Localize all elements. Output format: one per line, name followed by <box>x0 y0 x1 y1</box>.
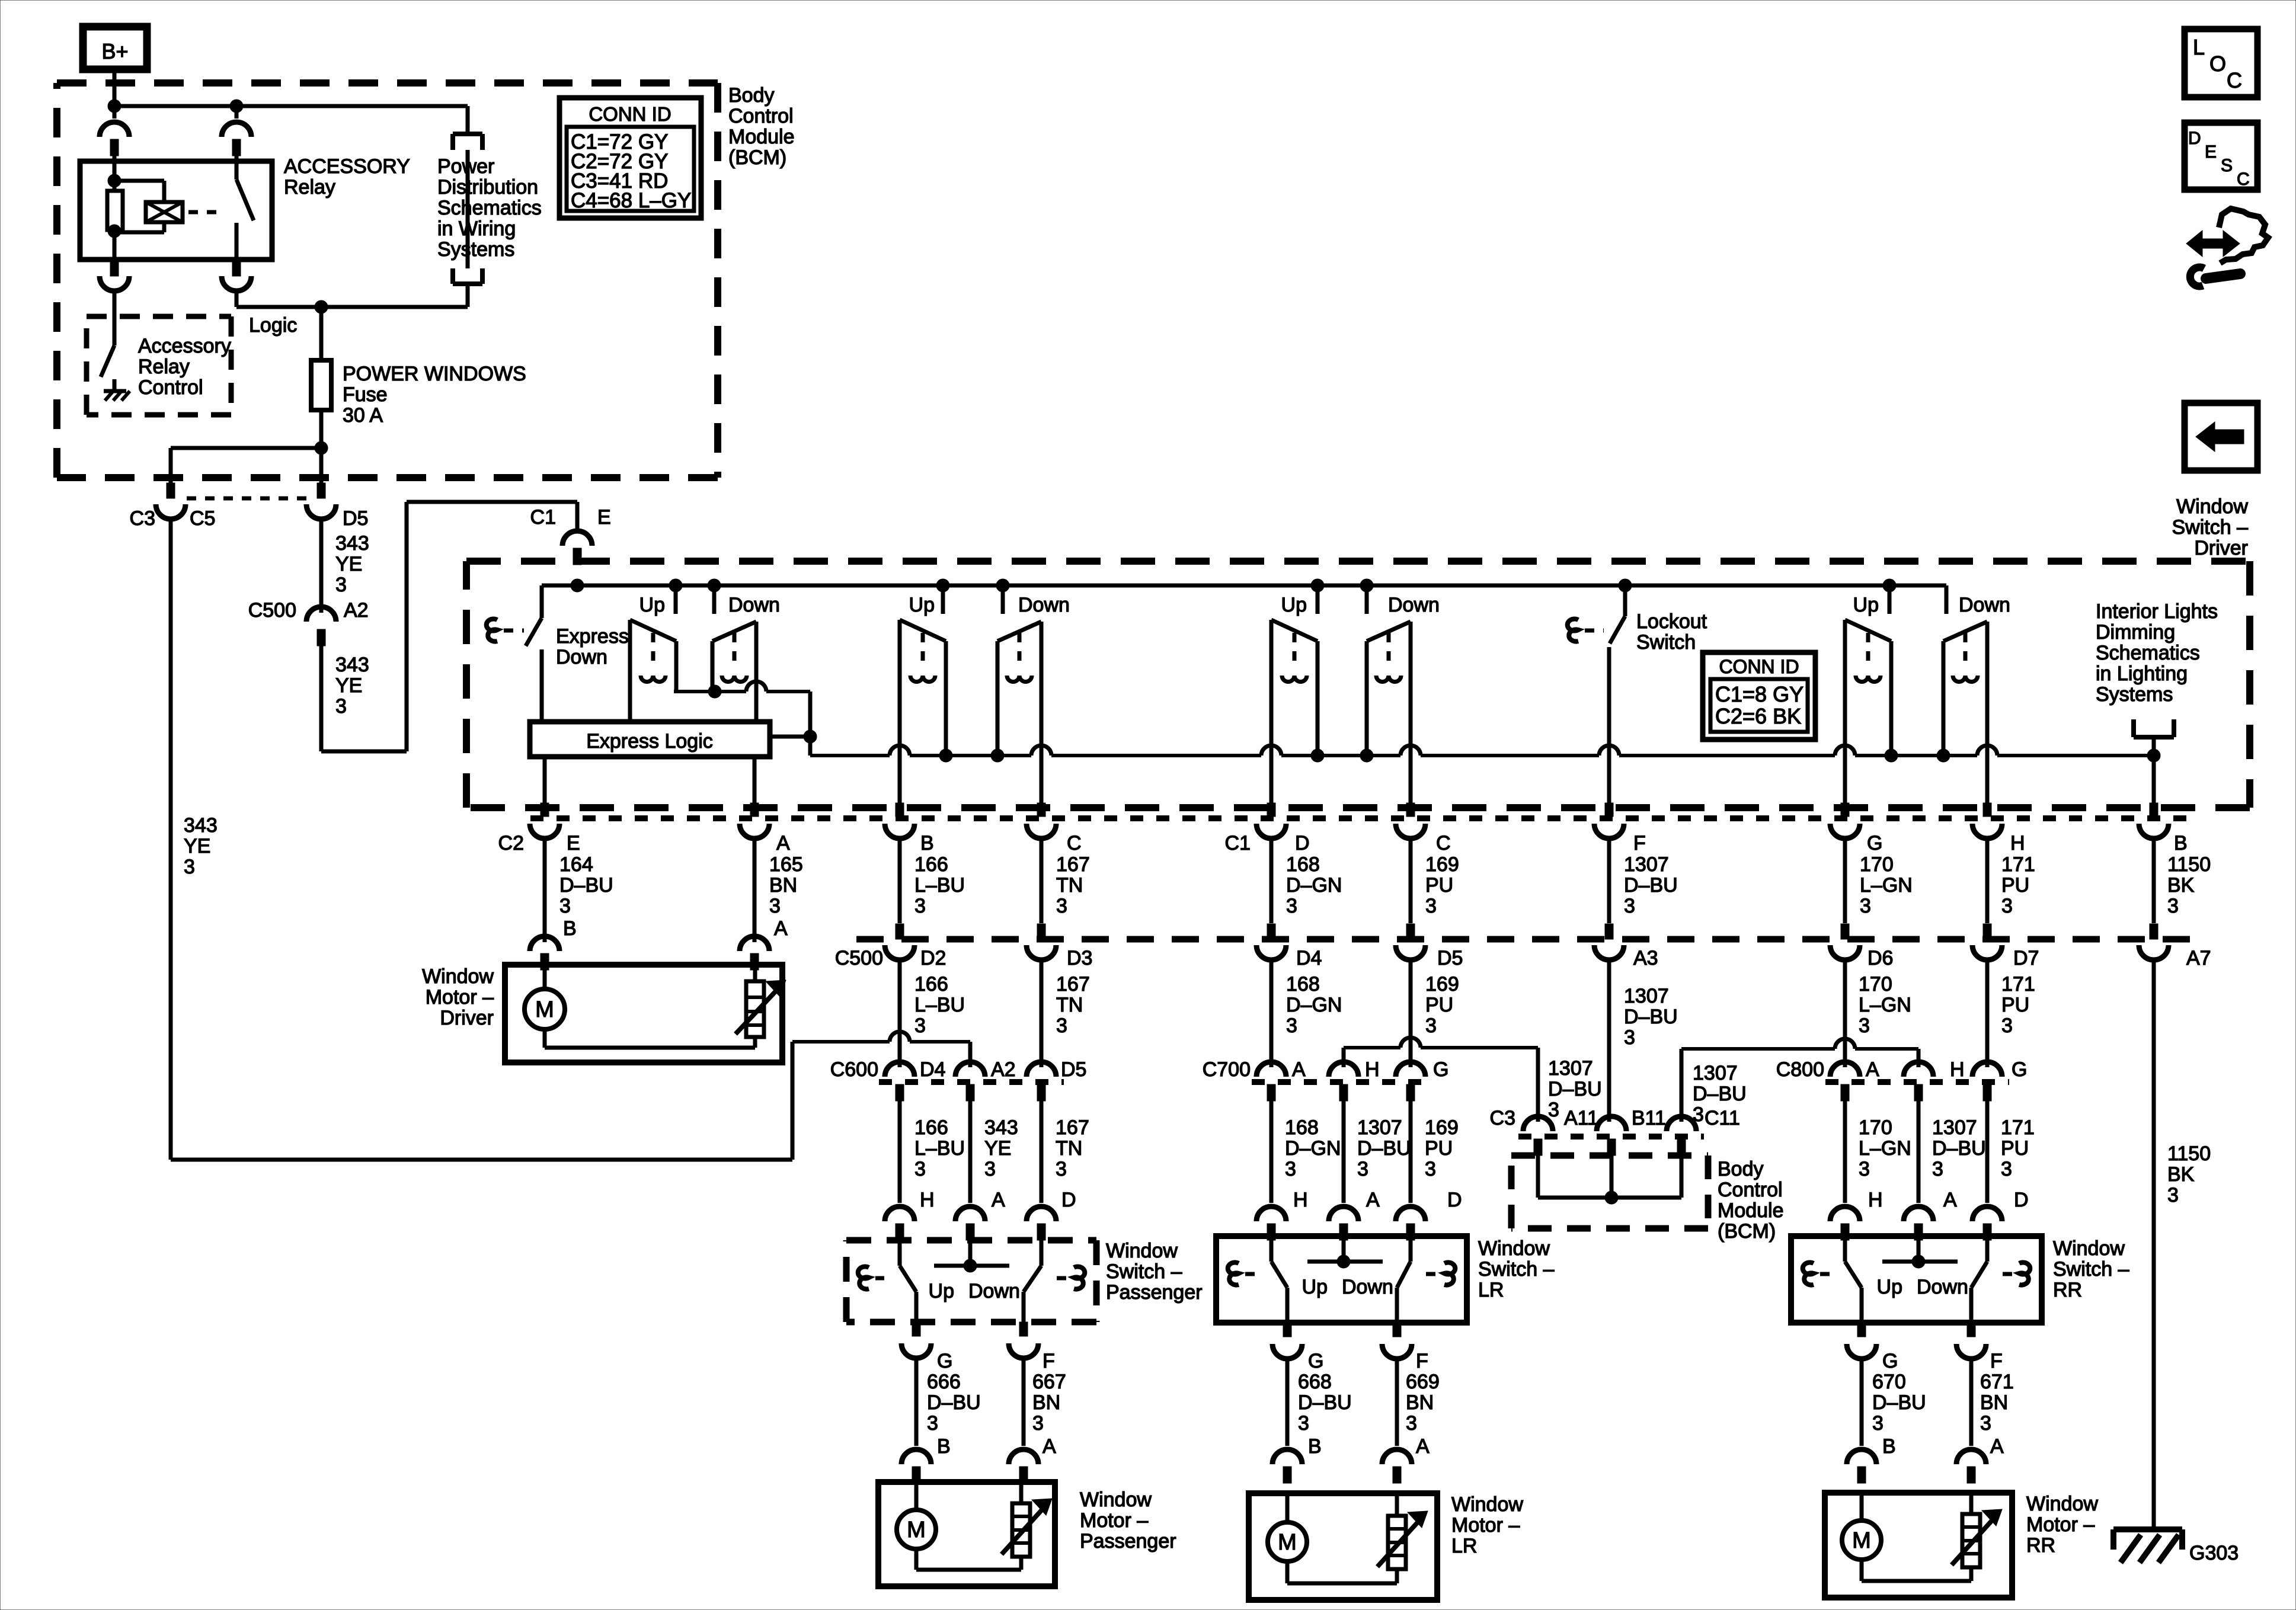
svg-text:(BCM): (BCM) <box>1718 1220 1776 1243</box>
svg-text:RR: RR <box>2053 1279 2082 1301</box>
svg-text:BN: BN <box>1406 1391 1434 1414</box>
svg-text:D–BU: D–BU <box>1357 1137 1411 1160</box>
svg-text:B: B <box>2174 832 2188 854</box>
svg-text:C: C <box>2237 169 2250 189</box>
svg-text:D3: D3 <box>1067 947 1092 969</box>
svg-text:LR: LR <box>1451 1535 1477 1557</box>
svg-text:L–GN: L–GN <box>1859 1137 1911 1160</box>
svg-text:3: 3 <box>914 895 926 917</box>
svg-text:PU: PU <box>2001 1137 2029 1160</box>
svg-text:666: 666 <box>927 1371 961 1393</box>
svg-text:3: 3 <box>1056 895 1067 917</box>
svg-text:B+: B+ <box>101 39 128 63</box>
svg-text:3: 3 <box>2001 1158 2012 1180</box>
svg-text:CONN ID: CONN ID <box>1719 656 1799 677</box>
svg-text:D–GN: D–GN <box>1285 1137 1341 1160</box>
svg-text:171: 171 <box>2001 853 2035 876</box>
svg-text:3: 3 <box>2167 1184 2179 1206</box>
svg-text:C1=8 GY: C1=8 GY <box>1715 682 1803 706</box>
svg-text:3: 3 <box>335 574 347 596</box>
svg-text:YE: YE <box>335 553 362 575</box>
svg-text:E: E <box>2205 142 2217 162</box>
svg-text:D4: D4 <box>920 1058 945 1081</box>
svg-text:L–BU: L–BU <box>914 994 965 1016</box>
svg-text:Systems: Systems <box>2096 683 2173 706</box>
svg-text:170: 170 <box>1859 973 1892 996</box>
svg-text:G: G <box>1882 1350 1898 1372</box>
svg-text:D–GN: D–GN <box>1286 874 1342 897</box>
svg-text:PU: PU <box>1425 1137 1453 1160</box>
svg-text:D: D <box>2014 1189 2029 1211</box>
svg-text:343: 343 <box>184 814 218 837</box>
svg-text:3: 3 <box>1286 895 1297 917</box>
svg-text:167: 167 <box>1056 853 1090 876</box>
svg-text:A: A <box>1866 1058 1879 1081</box>
svg-text:C500: C500 <box>835 947 883 969</box>
svg-text:Relay: Relay <box>138 356 190 378</box>
svg-text:30 A: 30 A <box>343 404 383 427</box>
svg-text:A2: A2 <box>991 1058 1016 1081</box>
svg-text:3: 3 <box>1860 895 1871 917</box>
svg-text:C: C <box>1067 832 1082 854</box>
svg-text:POWER WINDOWS: POWER WINDOWS <box>343 363 526 385</box>
svg-text:YE: YE <box>984 1137 1011 1160</box>
svg-text:168: 168 <box>1286 973 1320 996</box>
svg-text:Body: Body <box>1718 1158 1764 1180</box>
svg-text:L–BU: L–BU <box>914 874 965 897</box>
svg-text:B: B <box>563 917 577 940</box>
svg-text:S: S <box>2221 156 2233 175</box>
svg-text:Driver: Driver <box>440 1007 494 1029</box>
svg-text:1307: 1307 <box>1693 1062 1738 1084</box>
svg-text:Fuse: Fuse <box>343 383 388 406</box>
svg-text:BN: BN <box>1980 1391 2008 1414</box>
svg-text:3: 3 <box>1859 1014 1870 1037</box>
svg-text:Down: Down <box>1959 594 2010 616</box>
svg-text:O: O <box>2209 52 2226 76</box>
svg-text:CONN ID: CONN ID <box>589 103 671 125</box>
svg-text:D: D <box>1295 832 1310 854</box>
svg-text:H: H <box>920 1189 935 1211</box>
svg-text:171: 171 <box>2001 1116 2035 1139</box>
svg-text:3: 3 <box>1056 1158 1067 1180</box>
svg-text:E: E <box>567 832 580 854</box>
svg-text:Motor –: Motor – <box>426 986 494 1009</box>
svg-text:G303: G303 <box>2189 1542 2239 1564</box>
svg-text:Window: Window <box>422 965 494 988</box>
svg-text:PU: PU <box>1425 874 1453 897</box>
svg-text:E: E <box>597 506 611 529</box>
svg-text:Window: Window <box>1080 1489 1152 1511</box>
svg-text:D6: D6 <box>1868 947 1893 969</box>
svg-text:Express Logic: Express Logic <box>586 730 713 753</box>
svg-text:A: A <box>1416 1435 1430 1458</box>
svg-text:A2: A2 <box>344 599 369 622</box>
svg-text:1307: 1307 <box>1357 1116 1402 1139</box>
svg-text:Down: Down <box>556 646 607 668</box>
svg-text:Passenger: Passenger <box>1080 1530 1176 1553</box>
svg-text:168: 168 <box>1285 1116 1319 1139</box>
svg-text:3: 3 <box>1548 1099 1559 1121</box>
svg-text:ACCESSORY: ACCESSORY <box>284 155 410 178</box>
svg-text:C11: C11 <box>1705 1107 1740 1129</box>
svg-text:A: A <box>1292 1058 1306 1081</box>
svg-text:G: G <box>1308 1350 1323 1372</box>
svg-text:169: 169 <box>1425 1116 1459 1139</box>
svg-text:3: 3 <box>1056 1014 1067 1037</box>
svg-text:TN: TN <box>1056 874 1083 897</box>
svg-text:3: 3 <box>914 1158 926 1180</box>
svg-text:C800: C800 <box>1776 1058 1824 1081</box>
svg-text:171: 171 <box>2001 973 2035 996</box>
svg-text:Switch –: Switch – <box>2053 1258 2129 1281</box>
svg-text:3: 3 <box>1980 1412 1991 1435</box>
svg-text:Interior Lights: Interior Lights <box>2096 600 2218 623</box>
svg-text:Down: Down <box>1917 1276 1968 1298</box>
svg-text:Switch –: Switch – <box>2172 516 2249 539</box>
svg-text:Control: Control <box>1718 1179 1783 1201</box>
svg-text:165: 165 <box>769 853 803 876</box>
svg-text:B: B <box>920 832 934 854</box>
svg-text:3: 3 <box>1286 1014 1297 1037</box>
svg-text:C4=68 L–GY: C4=68 L–GY <box>571 189 691 212</box>
svg-text:L–BU: L–BU <box>914 1137 965 1160</box>
svg-text:C3: C3 <box>1490 1107 1515 1129</box>
svg-text:F: F <box>1633 832 1646 854</box>
svg-text:A: A <box>1366 1189 1380 1211</box>
svg-text:Up: Up <box>1877 1276 1902 1298</box>
svg-text:343: 343 <box>335 654 369 676</box>
svg-text:3: 3 <box>914 1014 926 1037</box>
svg-text:670: 670 <box>1872 1371 1906 1393</box>
svg-text:667: 667 <box>1032 1371 1066 1393</box>
svg-text:B: B <box>1308 1435 1322 1458</box>
svg-text:Accessory: Accessory <box>138 335 231 357</box>
svg-text:166: 166 <box>914 853 948 876</box>
svg-text:671: 671 <box>1980 1371 2014 1393</box>
svg-text:C2: C2 <box>498 832 524 854</box>
svg-text:A7: A7 <box>2186 947 2211 969</box>
svg-text:Logic: Logic <box>249 314 297 337</box>
svg-text:3: 3 <box>1932 1158 1943 1180</box>
svg-text:D: D <box>2188 129 2201 148</box>
svg-text:D–BU: D–BU <box>1548 1078 1602 1100</box>
svg-text:M: M <box>535 997 554 1022</box>
svg-text:TN: TN <box>1056 1137 1082 1160</box>
svg-text:166: 166 <box>914 1116 948 1139</box>
svg-text:Motor –: Motor – <box>1451 1514 1520 1537</box>
svg-text:C3: C3 <box>130 507 155 530</box>
svg-text:Window: Window <box>2176 495 2248 518</box>
svg-text:D5: D5 <box>1061 1058 1086 1081</box>
svg-text:L–GN: L–GN <box>1860 874 1913 897</box>
svg-text:Up: Up <box>909 594 935 616</box>
svg-text:A: A <box>1990 1435 2004 1458</box>
svg-text:3: 3 <box>1298 1412 1309 1435</box>
svg-text:C600: C600 <box>830 1058 878 1081</box>
svg-text:Control: Control <box>728 105 794 127</box>
svg-text:3: 3 <box>1872 1412 1884 1435</box>
svg-text:PU: PU <box>1425 994 1453 1016</box>
svg-text:3: 3 <box>1285 1158 1296 1180</box>
svg-text:G: G <box>2012 1058 2027 1081</box>
svg-text:668: 668 <box>1298 1371 1332 1393</box>
svg-text:3: 3 <box>335 695 347 718</box>
svg-text:3: 3 <box>2001 895 2013 917</box>
svg-text:F: F <box>1416 1350 1428 1372</box>
svg-text:D2: D2 <box>920 947 946 969</box>
svg-text:Express: Express <box>556 625 629 648</box>
svg-text:169: 169 <box>1425 973 1459 996</box>
svg-text:YE: YE <box>335 674 362 697</box>
svg-text:B: B <box>937 1435 951 1458</box>
svg-text:3: 3 <box>1425 895 1437 917</box>
svg-text:D–BU: D–BU <box>927 1391 981 1414</box>
svg-text:Up: Up <box>1281 594 1307 616</box>
svg-text:A11: A11 <box>1564 1107 1598 1129</box>
svg-text:343: 343 <box>335 532 369 555</box>
svg-text:3: 3 <box>184 856 195 878</box>
svg-text:Up: Up <box>1853 594 1879 616</box>
svg-text:Window: Window <box>1106 1240 1178 1262</box>
svg-text:Power: Power <box>437 155 494 178</box>
svg-text:YE: YE <box>184 835 210 857</box>
svg-text:Module: Module <box>1718 1199 1784 1222</box>
svg-text:Driver: Driver <box>2194 537 2248 559</box>
svg-text:3: 3 <box>769 895 781 917</box>
svg-text:TN: TN <box>1056 994 1083 1016</box>
svg-text:1150: 1150 <box>2167 1142 2211 1165</box>
svg-text:1307: 1307 <box>1624 853 1669 876</box>
svg-text:BN: BN <box>1032 1391 1060 1414</box>
svg-text:3: 3 <box>2001 1014 2013 1037</box>
svg-text:D–BU: D–BU <box>559 874 613 897</box>
svg-text:Schematics: Schematics <box>2096 642 2200 664</box>
svg-text:3: 3 <box>1425 1014 1437 1037</box>
svg-text:H: H <box>2010 832 2025 854</box>
svg-text:3: 3 <box>1859 1158 1870 1180</box>
svg-text:Down: Down <box>1388 594 1440 616</box>
svg-text:BK: BK <box>2167 1163 2195 1186</box>
svg-text:Window: Window <box>2053 1237 2125 1260</box>
svg-text:M: M <box>1852 1528 1871 1553</box>
svg-text:Body: Body <box>728 84 775 107</box>
svg-text:669: 669 <box>1406 1371 1440 1393</box>
svg-text:(BCM): (BCM) <box>728 146 786 169</box>
svg-text:Dimming: Dimming <box>2096 621 2175 644</box>
svg-text:170: 170 <box>1859 1116 1892 1139</box>
svg-text:BN: BN <box>769 874 797 897</box>
svg-text:A: A <box>1043 1435 1056 1458</box>
svg-text:Motor –: Motor – <box>1080 1509 1148 1532</box>
svg-text:C2=6 BK: C2=6 BK <box>1715 704 1801 728</box>
svg-text:3: 3 <box>1425 1158 1436 1180</box>
svg-text:in Lighting: in Lighting <box>2096 662 2188 685</box>
svg-text:A: A <box>992 1189 1005 1211</box>
svg-text:D–BU: D–BU <box>1624 874 1678 897</box>
svg-text:164: 164 <box>559 853 593 876</box>
svg-text:Window: Window <box>2026 1493 2098 1515</box>
svg-text:M: M <box>1278 1530 1297 1555</box>
svg-text:Up: Up <box>929 1280 954 1302</box>
svg-text:1150: 1150 <box>2167 853 2211 876</box>
svg-text:B11: B11 <box>1632 1107 1666 1129</box>
svg-text:Switch: Switch <box>1636 631 1696 654</box>
svg-text:3: 3 <box>984 1158 996 1180</box>
svg-text:RR: RR <box>2026 1534 2055 1557</box>
svg-text:D–BU: D–BU <box>1932 1137 1986 1160</box>
svg-text:Lockout: Lockout <box>1636 610 1707 633</box>
svg-text:C700: C700 <box>1203 1058 1251 1081</box>
svg-text:Control: Control <box>138 376 203 399</box>
svg-text:Relay: Relay <box>284 176 335 199</box>
svg-text:C: C <box>1436 832 1451 854</box>
svg-text:Up: Up <box>1302 1276 1328 1298</box>
svg-text:3: 3 <box>2167 895 2179 917</box>
svg-text:D: D <box>1447 1189 1462 1211</box>
svg-text:G: G <box>1433 1058 1448 1081</box>
svg-text:170: 170 <box>1860 853 1894 876</box>
svg-text:Passenger: Passenger <box>1106 1281 1203 1304</box>
svg-text:Down: Down <box>728 594 780 616</box>
svg-text:in Wiring: in Wiring <box>437 217 516 240</box>
svg-text:3: 3 <box>1032 1412 1044 1435</box>
svg-text:3: 3 <box>1406 1412 1417 1435</box>
svg-text:LR: LR <box>1478 1279 1504 1301</box>
svg-text:1307: 1307 <box>1548 1057 1593 1080</box>
svg-text:1307: 1307 <box>1624 985 1669 1007</box>
svg-text:Motor –: Motor – <box>2026 1513 2094 1536</box>
svg-text:A: A <box>1943 1189 1957 1211</box>
svg-text:Down: Down <box>1342 1276 1393 1298</box>
svg-text:3: 3 <box>1624 895 1635 917</box>
svg-text:A: A <box>774 917 788 940</box>
svg-text:D5: D5 <box>343 507 368 530</box>
svg-text:F: F <box>1990 1350 2003 1372</box>
svg-text:Systems: Systems <box>437 238 514 261</box>
svg-text:169: 169 <box>1425 853 1459 876</box>
svg-text:C5: C5 <box>190 507 215 530</box>
svg-text:Down: Down <box>1018 594 1070 616</box>
svg-text:A3: A3 <box>1633 947 1658 969</box>
svg-text:D–BU: D–BU <box>1624 1006 1678 1028</box>
svg-text:D–BU: D–BU <box>1693 1083 1747 1105</box>
svg-text:Up: Up <box>639 594 665 616</box>
svg-text:Down: Down <box>968 1280 1020 1302</box>
svg-text:3: 3 <box>1357 1158 1368 1180</box>
svg-text:M: M <box>907 1518 926 1542</box>
svg-text:H: H <box>1868 1189 1883 1211</box>
svg-text:B: B <box>1882 1435 1896 1458</box>
svg-text:C1: C1 <box>530 506 556 529</box>
svg-text:Switch –: Switch – <box>1478 1258 1555 1281</box>
svg-text:D7: D7 <box>2013 947 2039 969</box>
svg-text:D5: D5 <box>1437 947 1463 969</box>
svg-text:Switch –: Switch – <box>1106 1260 1182 1283</box>
svg-text:168: 168 <box>1286 853 1320 876</box>
svg-text:D–GN: D–GN <box>1286 994 1342 1016</box>
svg-text:D: D <box>1061 1189 1076 1211</box>
svg-text:167: 167 <box>1056 1116 1089 1139</box>
svg-text:3: 3 <box>927 1412 938 1435</box>
svg-text:C500: C500 <box>248 599 296 622</box>
svg-text:A: A <box>776 832 790 854</box>
svg-text:C: C <box>2227 68 2242 92</box>
svg-text:PU: PU <box>2001 874 2029 897</box>
svg-text:Module: Module <box>728 126 795 148</box>
svg-text:BK: BK <box>2167 874 2195 897</box>
svg-text:F: F <box>1043 1350 1055 1372</box>
svg-text:G: G <box>937 1350 952 1372</box>
svg-text:Distribution: Distribution <box>437 176 538 199</box>
svg-text:166: 166 <box>914 973 948 996</box>
svg-text:D4: D4 <box>1296 947 1322 969</box>
svg-text:H: H <box>1950 1058 1965 1081</box>
svg-text:Window: Window <box>1451 1493 1523 1516</box>
svg-text:343: 343 <box>984 1116 1018 1139</box>
svg-text:G: G <box>1867 832 1882 854</box>
svg-text:L–GN: L–GN <box>1859 994 1911 1016</box>
svg-text:D–BU: D–BU <box>1872 1391 1926 1414</box>
svg-text:3: 3 <box>1624 1026 1635 1049</box>
svg-text:3: 3 <box>559 895 571 917</box>
svg-text:H: H <box>1365 1058 1380 1081</box>
svg-text:167: 167 <box>1056 973 1090 996</box>
svg-text:Window: Window <box>1478 1237 1550 1260</box>
svg-text:D–BU: D–BU <box>1298 1391 1352 1414</box>
svg-text:1307: 1307 <box>1932 1116 1977 1139</box>
svg-text:PU: PU <box>2001 994 2029 1016</box>
svg-text:C1: C1 <box>1225 832 1251 854</box>
svg-text:Schematics: Schematics <box>437 197 542 219</box>
svg-text:H: H <box>1293 1189 1308 1211</box>
svg-text:L: L <box>2193 35 2205 59</box>
